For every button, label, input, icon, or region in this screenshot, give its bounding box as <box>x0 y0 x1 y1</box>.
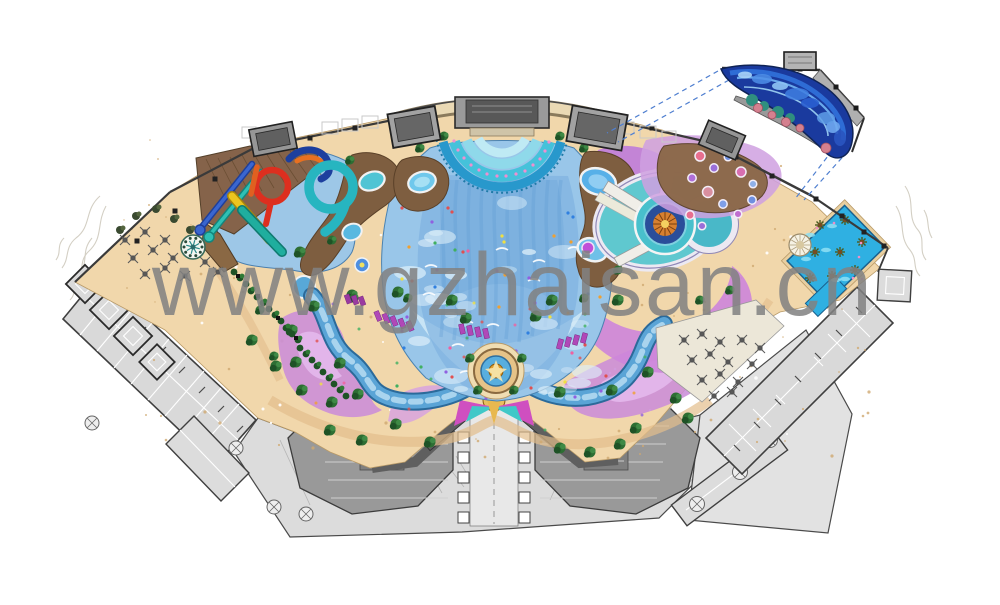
svg-text:www.gzhaisan.cn: www.gzhaisan.cn <box>151 234 874 334</box>
